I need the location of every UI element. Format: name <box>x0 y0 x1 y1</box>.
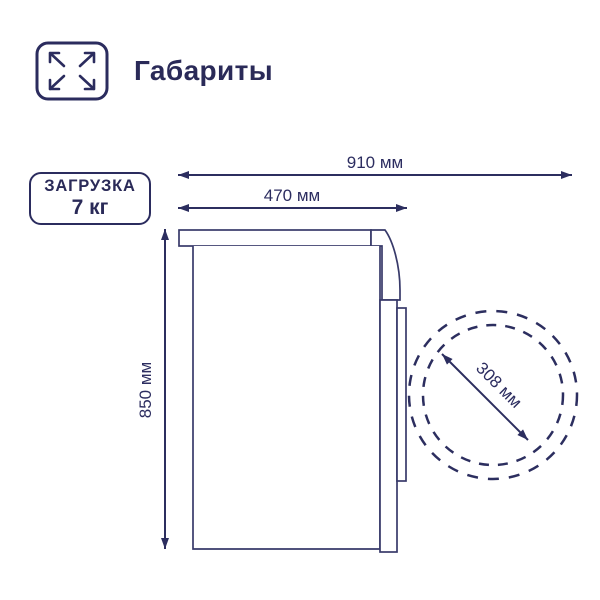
dimensions-infographic: Габариты ЗАГРУЗКА 7 кг <box>0 0 600 600</box>
dimension-label-depth-total: 910 мм <box>347 153 403 172</box>
dimension-label-depth-body: 470 мм <box>264 186 320 205</box>
door-swing <box>409 311 577 479</box>
dimension-label-height: 850 мм <box>136 362 155 418</box>
washing-machine-diagram: 910 мм 470 мм 850 мм 308 мм <box>0 0 600 600</box>
machine-profile <box>179 230 406 552</box>
machine-door <box>397 308 406 481</box>
machine-body <box>193 246 380 549</box>
machine-lid <box>179 230 371 246</box>
door-swing-inner-circle <box>423 325 563 465</box>
dimension-label-door-diameter: 308 мм <box>472 358 525 411</box>
machine-front-panel <box>380 300 397 552</box>
door-swing-outer-circle <box>409 311 577 479</box>
